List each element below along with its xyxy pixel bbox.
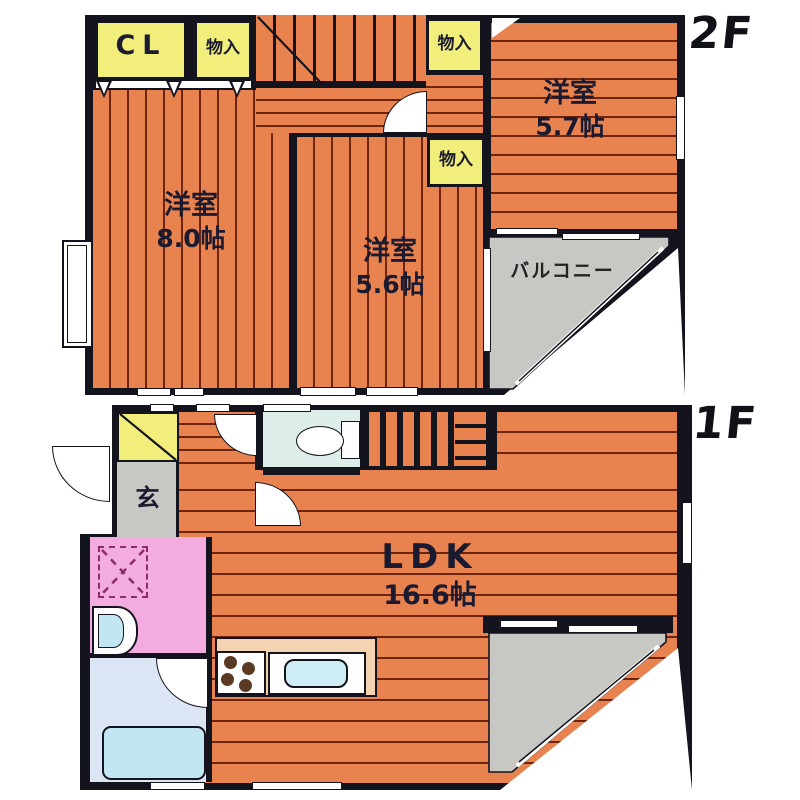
toilet-bottom-wall <box>263 467 360 475</box>
window-2f-bottom-1 <box>137 388 171 396</box>
stove-burner <box>242 662 255 675</box>
storage-label-3: 物入 <box>428 152 484 170</box>
window-1f-right <box>682 502 692 564</box>
room-56jo-name: 洋室 <box>330 238 450 266</box>
closet-cl-label: CL <box>97 32 185 60</box>
window-1f-bottom-1 <box>150 782 205 790</box>
balcony-window-1 <box>496 228 558 235</box>
floor2-stairs <box>256 15 426 81</box>
window-2f-right <box>676 96 685 160</box>
floor2-hall-floor-2 <box>426 75 483 88</box>
floor2-stair-wall <box>256 81 426 88</box>
room-56jo-size: 5.6帖 <box>330 272 450 298</box>
ldk-name: LDK <box>350 540 510 576</box>
stove-burner <box>239 679 252 692</box>
wash-basin-bowl <box>98 614 124 648</box>
window-1f-top-3 <box>263 404 311 412</box>
storage-label-1: 物入 <box>195 40 251 58</box>
balcony-label: バルコニー <box>490 262 635 282</box>
entrance-label: 玄 <box>120 486 175 511</box>
room-8jo-name: 洋室 <box>131 192 251 220</box>
window-1f-bottom-2 <box>252 782 342 790</box>
window-2f-bottom-3 <box>300 387 356 396</box>
storage-label-2: 物入 <box>427 36 482 54</box>
stove-burner <box>224 656 237 669</box>
bay-window-inner <box>67 245 87 343</box>
terrace-window-2 <box>568 625 638 633</box>
floor1-shoe-cabinet <box>117 412 179 462</box>
bathtub <box>102 726 206 780</box>
room-57jo-name: 洋室 <box>505 80 635 108</box>
window-2f-bottom-4 <box>366 387 418 396</box>
kitchen-sink <box>284 659 348 688</box>
room-8jo-size: 8.0帖 <box>131 226 251 252</box>
room-57jo-size: 5.7帖 <box>505 114 635 140</box>
window-1f-top-2 <box>196 404 230 412</box>
floor2-tag: 2F <box>686 8 756 59</box>
floor2-hall-floor <box>256 88 483 133</box>
stove-burner <box>221 673 234 686</box>
window-1f-top-1 <box>150 404 174 412</box>
floor1-stairs-treads <box>369 412 455 466</box>
floor1-stairs-landing <box>455 412 486 466</box>
floor1-ldk-upper-floor <box>497 412 677 470</box>
balcony-window-2 <box>562 233 640 240</box>
toilet-bowl <box>296 426 344 456</box>
window-2f-bottom-2 <box>174 388 204 396</box>
ldk-size: 16.6帖 <box>350 582 510 610</box>
washing-machine-space <box>98 546 148 598</box>
floor1-tag: 1F <box>690 398 760 449</box>
terrace-window-1 <box>500 620 558 628</box>
floor-plan-page: { "floor2": { "label": "2F", "closet": "… <box>0 0 800 800</box>
